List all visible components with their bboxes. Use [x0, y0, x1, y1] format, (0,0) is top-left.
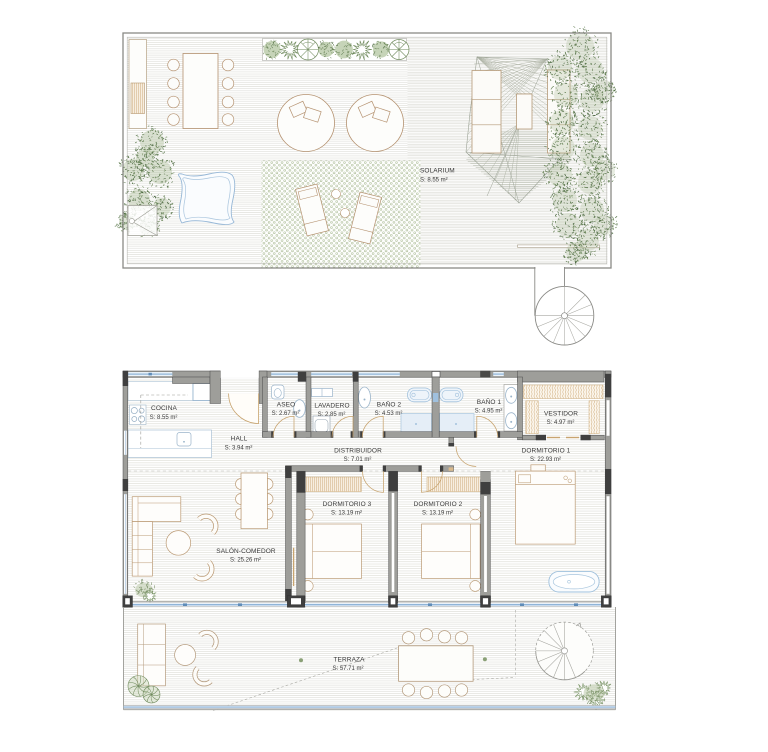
svg-text:VESTIDOR: VESTIDOR: [544, 411, 578, 418]
svg-text:S: 2.85 m²: S: 2.85 m²: [318, 412, 346, 418]
svg-text:S: 4.97 m²: S: 4.97 m²: [547, 420, 575, 426]
svg-text:DORMITORIO 3: DORMITORIO 3: [323, 501, 372, 508]
svg-text:S: 13.19 m²: S: 13.19 m²: [331, 511, 362, 517]
svg-text:HALL: HALL: [231, 436, 248, 443]
svg-text:DISTRIBUIDOR: DISTRIBUIDOR: [334, 448, 382, 455]
svg-text:S: 25.26 m²: S: 25.26 m²: [230, 558, 261, 564]
svg-text:S: 7.01 m²: S: 7.01 m²: [344, 457, 372, 463]
svg-text:SALÓN-COMEDOR: SALÓN-COMEDOR: [216, 546, 276, 555]
svg-text:S: 22.93 m²: S: 22.93 m²: [530, 457, 561, 463]
svg-text:S: 8.55 m²: S: 8.55 m²: [150, 415, 178, 421]
svg-text:TERRAZA: TERRAZA: [333, 657, 365, 664]
svg-text:COCINA: COCINA: [151, 405, 177, 412]
svg-text:S: 3.94 m²: S: 3.94 m²: [225, 446, 253, 452]
svg-text:LAVADERO: LAVADERO: [314, 403, 349, 410]
svg-text:DORMITORIO 2: DORMITORIO 2: [414, 501, 463, 508]
svg-text:S: 2.67 m²: S: 2.67 m²: [272, 411, 300, 417]
svg-text:BAÑO 1: BAÑO 1: [477, 397, 502, 406]
svg-text:S: 13.19 m²: S: 13.19 m²: [422, 511, 453, 517]
svg-text:DORMITORIO 1: DORMITORIO 1: [522, 448, 571, 455]
svg-text:ASEO: ASEO: [277, 402, 295, 409]
svg-text:SOLARIUM: SOLARIUM: [420, 168, 455, 175]
svg-text:S: 57.71 m²: S: 57.71 m²: [332, 666, 363, 672]
svg-text:S: 4.95 m²: S: 4.95 m²: [475, 409, 503, 415]
svg-text:S: 4.53 m²: S: 4.53 m²: [375, 411, 403, 417]
svg-text:S: 8.55 m²: S: 8.55 m²: [420, 178, 448, 184]
svg-text:BAÑO 2: BAÑO 2: [377, 400, 402, 409]
